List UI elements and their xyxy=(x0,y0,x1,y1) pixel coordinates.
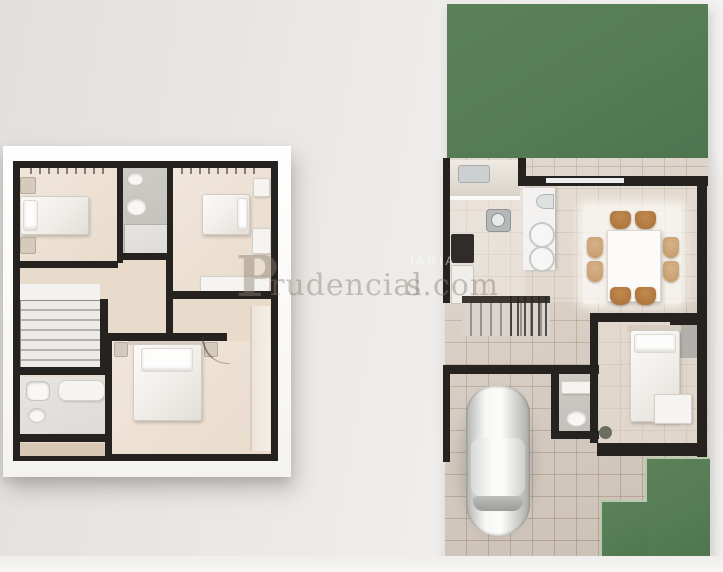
stairs-railing-slats-icon xyxy=(510,296,550,336)
ground-wall-corner-step xyxy=(518,158,526,186)
master-nightstand-left xyxy=(114,342,128,357)
ground-bathroom-sink xyxy=(561,381,593,394)
backyard-lawn xyxy=(447,4,708,160)
dining-chair-bottom-1 xyxy=(610,287,631,305)
dining-chair-right-1 xyxy=(663,237,679,258)
upper-bathroom2-sink-icon xyxy=(26,381,50,401)
wall-bathroom2-bottom xyxy=(13,434,112,442)
ground-bedroom-wall-left xyxy=(590,313,598,443)
car xyxy=(466,386,530,536)
dining-chair-left-1 xyxy=(587,237,603,258)
watermark-name: rudencial xyxy=(270,268,423,303)
island-stool-2 xyxy=(529,246,555,272)
upper-entry-strip xyxy=(20,443,106,456)
ground-bedroom-pillow xyxy=(634,334,676,353)
dining-window-icon xyxy=(546,178,624,183)
dining-chair-top-1 xyxy=(610,211,631,229)
kitchen-sink-icon xyxy=(458,165,490,183)
ground-bedroom-closet-shelf xyxy=(670,318,700,325)
ground-bedroom-wall-bottom xyxy=(597,443,707,456)
upper-stairs xyxy=(20,300,102,370)
ground-bedroom-dresser xyxy=(654,394,692,424)
kitchen-washer-door-icon xyxy=(491,213,505,227)
upper-bathroom1-shower xyxy=(124,224,168,254)
upper-bathroom1-toilet-icon xyxy=(126,198,147,216)
ground-wall-under-stairs xyxy=(443,365,599,374)
ground-bathroom-toilet-icon xyxy=(566,410,587,427)
wall-below-stairs xyxy=(13,367,108,375)
wall-bathroom1-bottom xyxy=(117,253,173,260)
ground-bedroom-plant-icon xyxy=(599,426,612,439)
wall-bedroom1-right xyxy=(117,168,123,263)
watermark-suffix: s.com xyxy=(406,268,499,303)
upper-stairs-landing xyxy=(20,284,100,300)
wall-mid-vertical xyxy=(166,253,173,333)
upper-bathroom2-toilet-icon xyxy=(28,408,46,423)
watermark-small-text: IARIA xyxy=(410,254,456,268)
dining-chair-right-2 xyxy=(663,261,679,282)
bedroom1-nightstand-bottom xyxy=(20,237,36,254)
master-wardrobe xyxy=(250,306,270,451)
car-rear-window-icon xyxy=(473,496,523,511)
wall-bathroom1-right xyxy=(167,168,173,253)
wall-master-left xyxy=(105,333,112,460)
wall-bedroom1-bottom xyxy=(20,261,118,268)
upper-bathroom1-sink-icon xyxy=(127,172,144,186)
front-lawn-right xyxy=(645,457,710,564)
dining-chair-top-2 xyxy=(635,211,656,229)
bedroom2-nightstand xyxy=(253,178,270,197)
bedroom2-closet-icon xyxy=(181,168,261,174)
dining-chair-bottom-2 xyxy=(635,287,656,305)
bedroom1-closet-icon xyxy=(30,168,110,174)
watermark: P rudencial s.com IARIA xyxy=(228,244,488,314)
ground-bathroom-wall-left xyxy=(551,373,559,439)
bedroom2-pillow xyxy=(237,198,248,231)
bedroom1-nightstand-top xyxy=(20,177,36,194)
upper-bathroom2-tub xyxy=(58,380,105,401)
floorplan-scene: P rudencial s.com IARIA xyxy=(0,0,723,572)
front-lawn-step xyxy=(600,500,647,564)
ground-wall-left-lower xyxy=(443,374,450,462)
master-pillow xyxy=(141,348,193,372)
island-sink-icon xyxy=(536,194,554,209)
table-surface-strip xyxy=(0,556,723,572)
dining-chair-left-2 xyxy=(587,261,603,282)
island-stool-1 xyxy=(529,222,555,248)
car-roof-icon xyxy=(471,438,525,496)
bedroom1-pillow xyxy=(23,200,38,231)
